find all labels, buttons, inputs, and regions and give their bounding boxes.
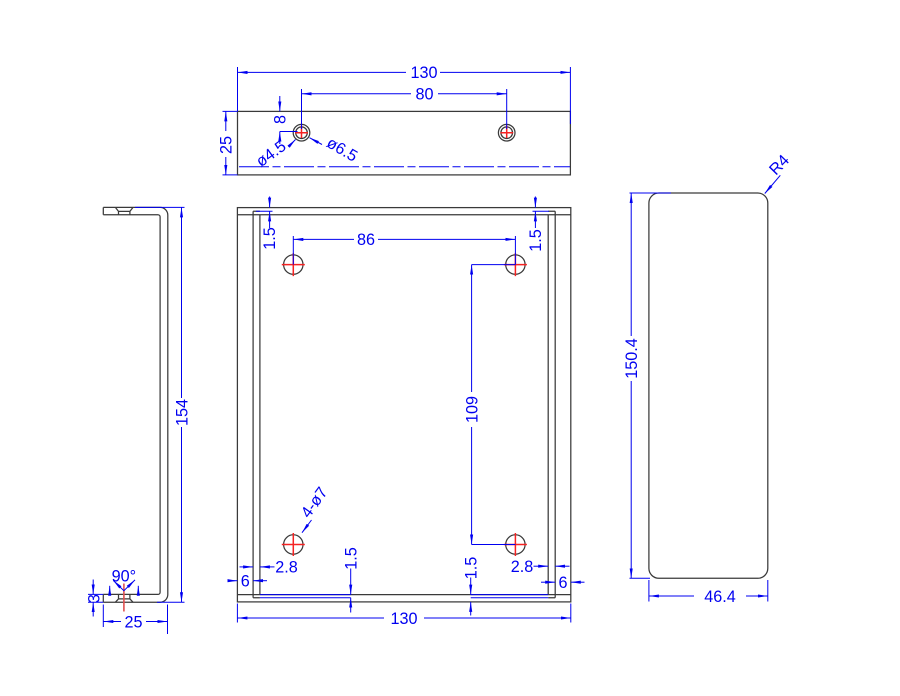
svg-text:109: 109 <box>463 396 481 423</box>
svg-text:8: 8 <box>272 115 290 124</box>
svg-text:1.5: 1.5 <box>463 557 481 580</box>
svg-text:1.5: 1.5 <box>261 227 279 250</box>
svg-text:2.8: 2.8 <box>511 558 534 576</box>
svg-text:1.5: 1.5 <box>343 547 361 570</box>
svg-text:80: 80 <box>415 86 433 104</box>
svg-text:46.4: 46.4 <box>704 588 736 606</box>
svg-text:3: 3 <box>85 594 103 603</box>
svg-text:25: 25 <box>217 136 235 154</box>
svg-text:25: 25 <box>124 613 142 631</box>
svg-text:1.5: 1.5 <box>527 229 545 252</box>
svg-text:150.4: 150.4 <box>623 338 641 379</box>
svg-text:6: 6 <box>241 573 250 591</box>
svg-text:6: 6 <box>558 574 567 592</box>
svg-text:2.8: 2.8 <box>275 559 298 577</box>
svg-text:130: 130 <box>390 610 417 628</box>
svg-text:86: 86 <box>357 231 375 249</box>
svg-text:130: 130 <box>410 64 437 82</box>
svg-text:154: 154 <box>173 399 191 426</box>
